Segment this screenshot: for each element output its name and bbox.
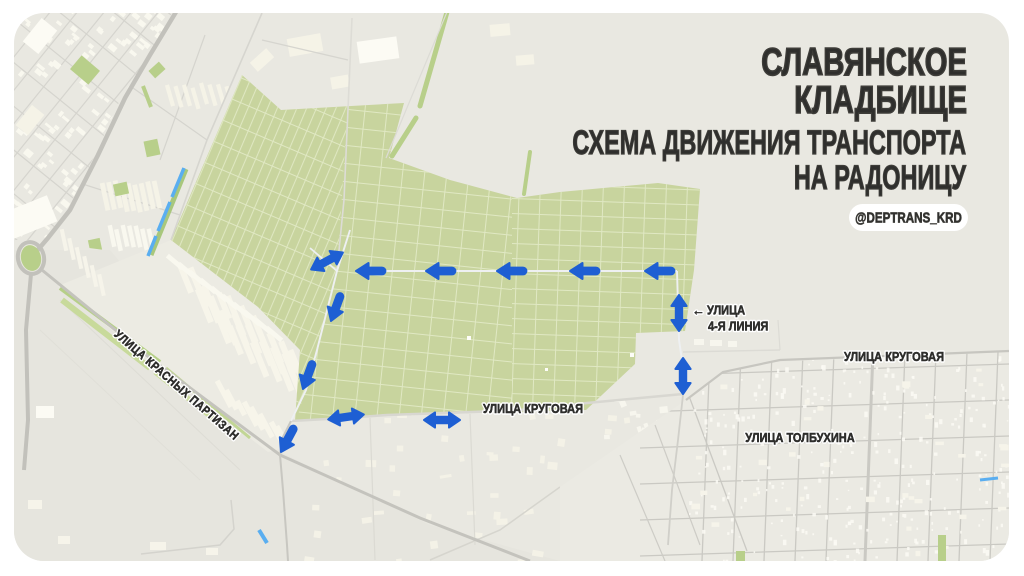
- svg-text:УЛИЦА КРУГОВАЯ: УЛИЦА КРУГОВАЯ: [483, 401, 583, 416]
- svg-text:УЛИЦА ТОЛБУХИНА: УЛИЦА ТОЛБУХИНА: [745, 430, 855, 445]
- svg-text:НА РАДОНИЦУ: НА РАДОНИЦУ: [794, 160, 967, 197]
- svg-text:УЛИЦА: УЛИЦА: [707, 303, 745, 318]
- svg-text:УЛИЦА КРУГОВАЯ: УЛИЦА КРУГОВАЯ: [844, 349, 944, 364]
- svg-text:@DEPTRANS_KRD: @DEPTRANS_KRD: [855, 209, 962, 226]
- svg-text:←: ←: [692, 303, 705, 319]
- svg-text:4-Я ЛИНИЯ: 4-Я ЛИНИЯ: [708, 319, 768, 334]
- svg-text:КЛАДБИЩЕ: КЛАДБИЩЕ: [794, 79, 967, 122]
- svg-text:СЛАВЯНСКОЕ: СЛАВЯНСКОЕ: [761, 41, 967, 84]
- svg-text:СХЕМА ДВИЖЕНИЯ ТРАНСПОРТА: СХЕМА ДВИЖЕНИЯ ТРАНСПОРТА: [572, 125, 966, 162]
